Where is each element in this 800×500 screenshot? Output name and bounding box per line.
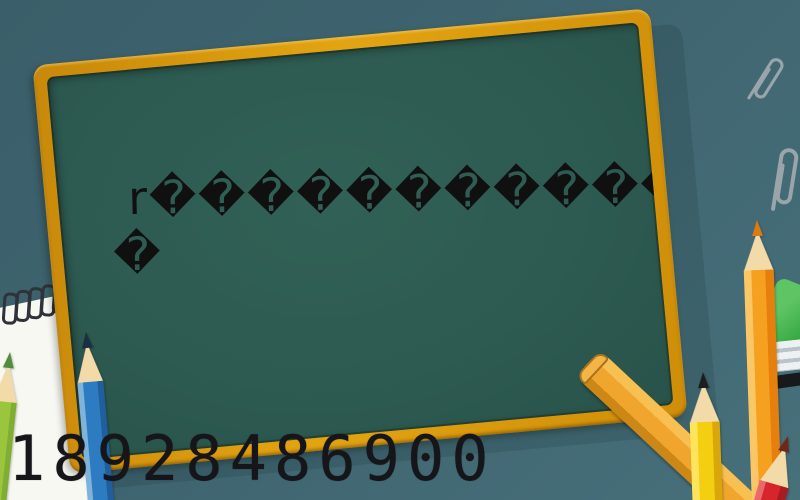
pencil-lead [752, 220, 764, 236]
pencil-lead [81, 332, 93, 349]
pencil-wood [74, 342, 103, 384]
pencil-wood [688, 382, 719, 423]
pencil-shaft [690, 421, 723, 500]
chalkboard-frame: r����������� � [32, 8, 687, 474]
paperclip-icon [761, 130, 800, 230]
paperclip-icon [738, 47, 792, 114]
yellow-pencil [688, 371, 723, 500]
pencil-lead [3, 351, 16, 368]
chalk-text: r����������� � [127, 157, 673, 282]
phone-number: 18928486900 [8, 428, 496, 490]
chalkboard-surface: r����������� � [47, 22, 674, 459]
scene: r����������� � [0, 0, 800, 500]
pencil-wood [742, 230, 773, 271]
pencil-lead [698, 372, 710, 388]
pencil-lead [778, 434, 793, 452]
